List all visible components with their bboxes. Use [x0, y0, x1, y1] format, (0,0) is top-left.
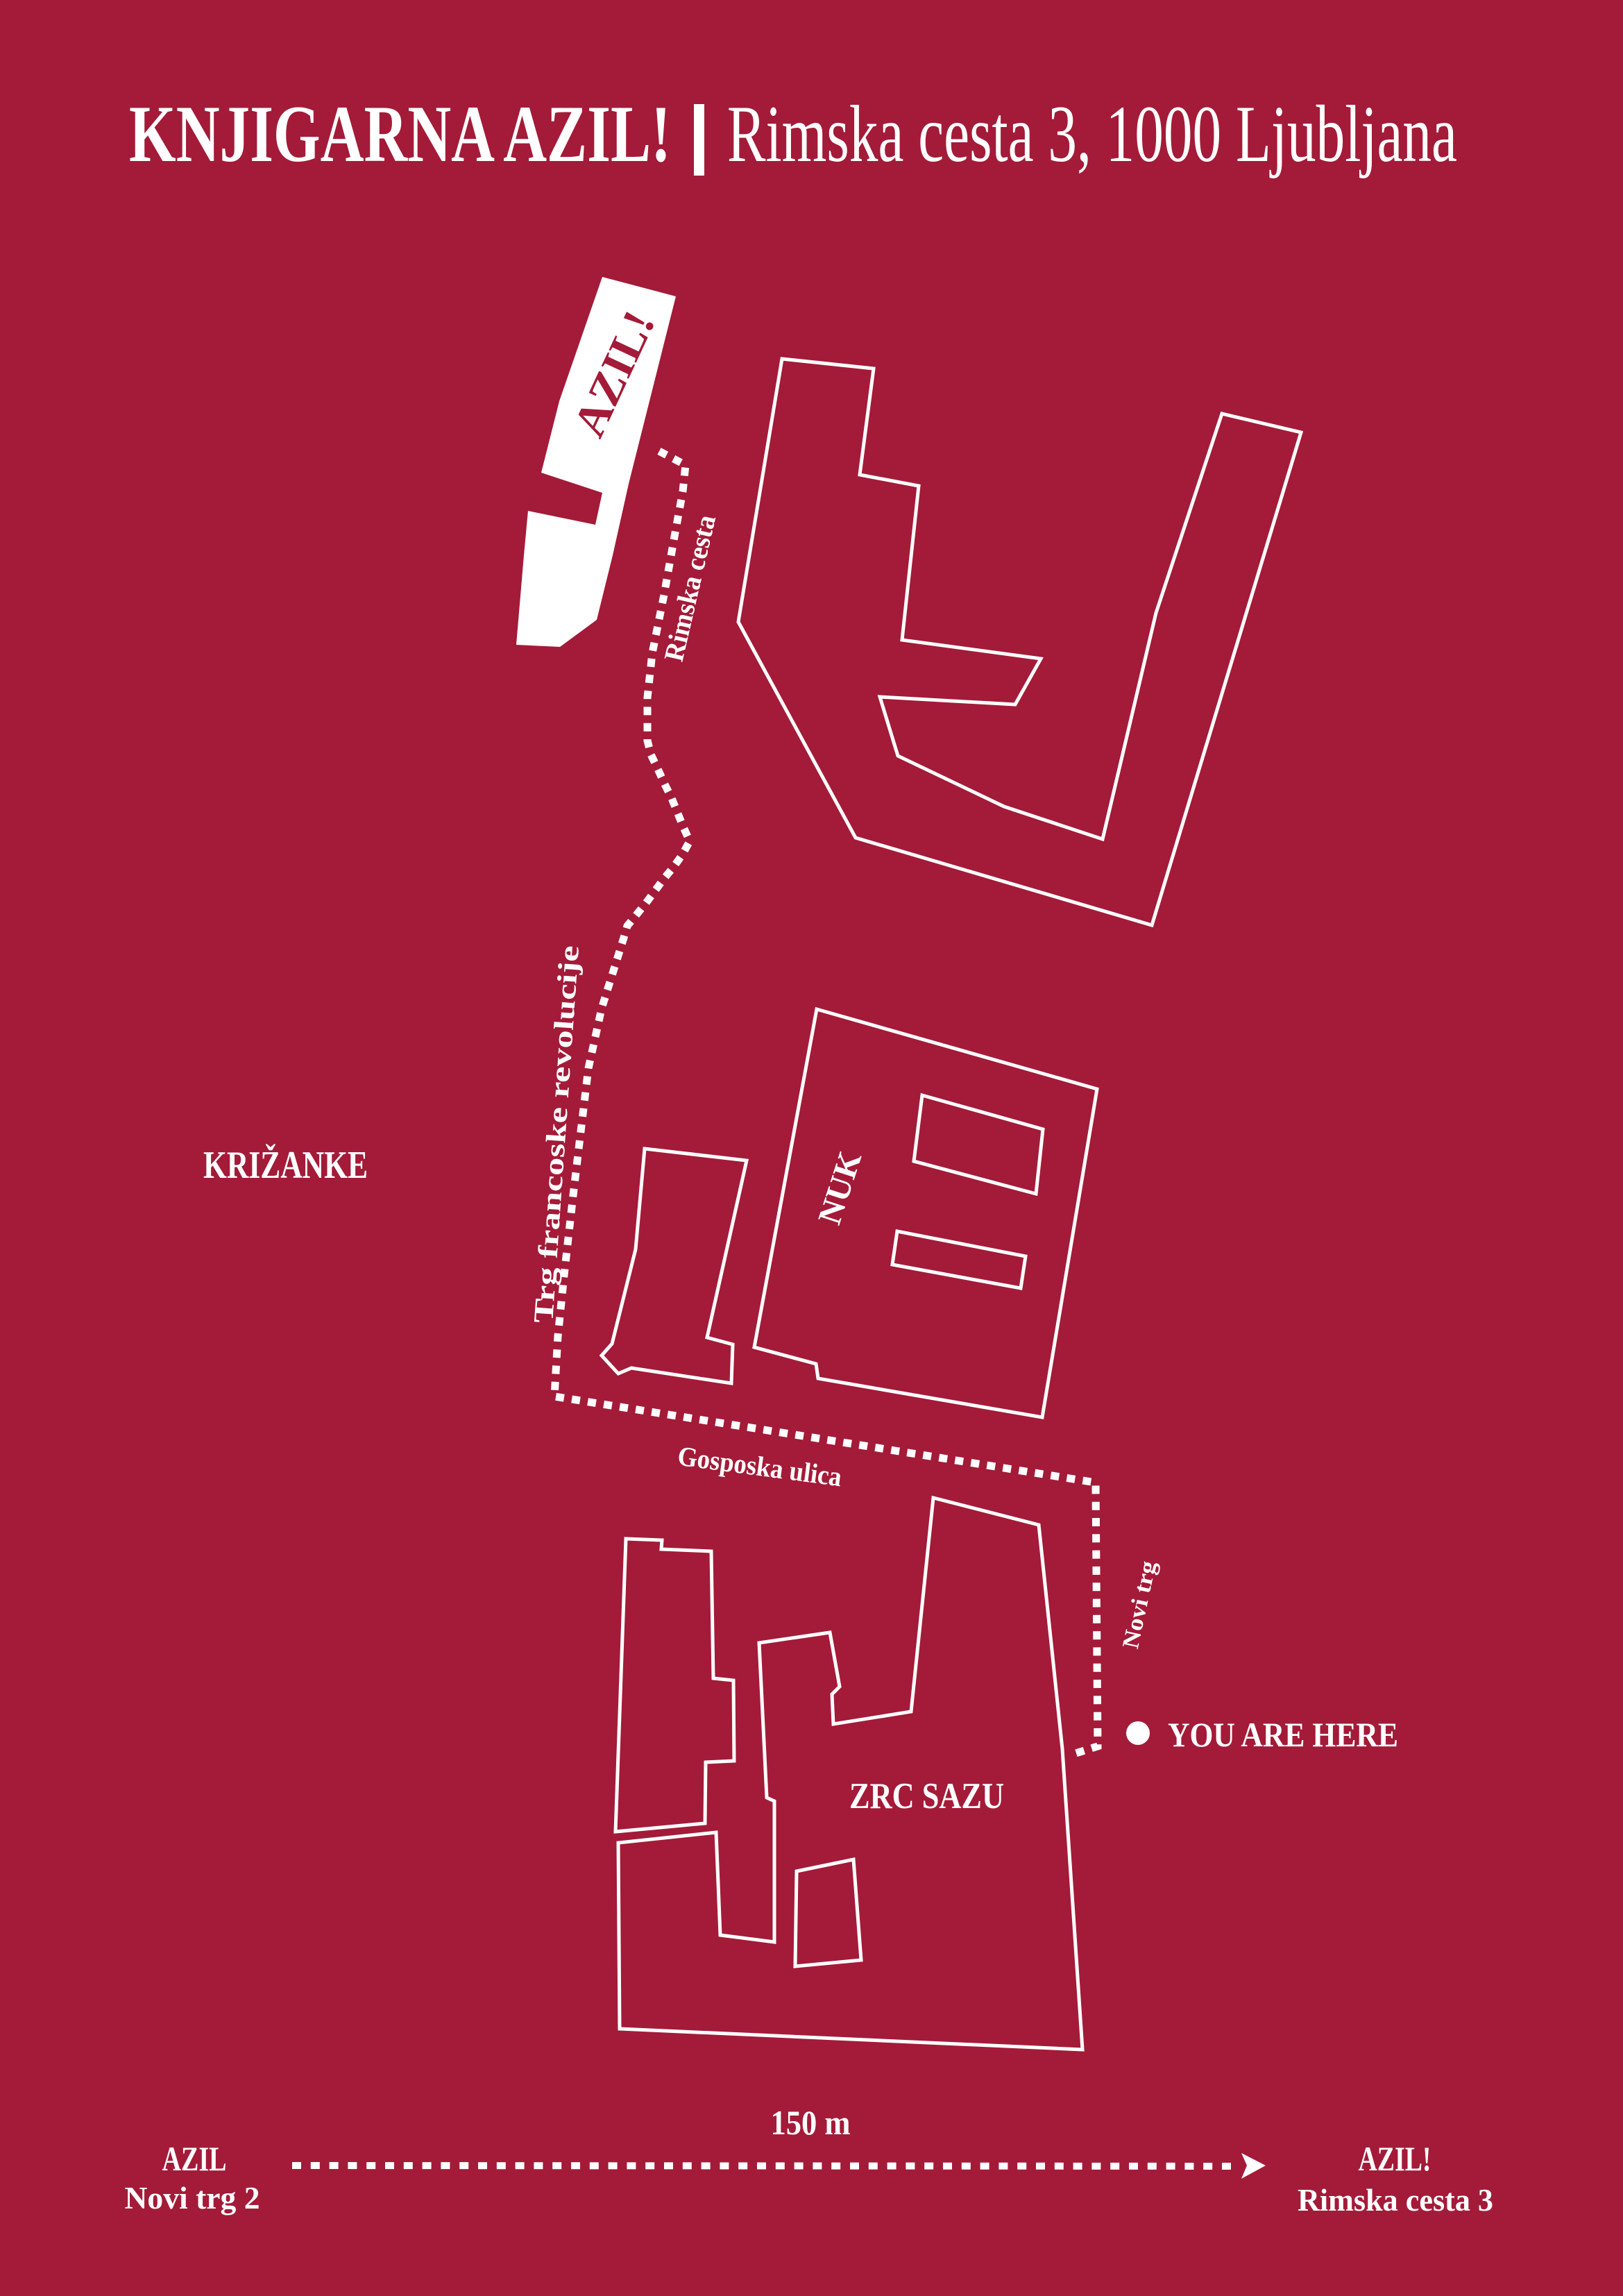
- svg-text:Rimska cesta 3: Rimska cesta 3: [1298, 2183, 1493, 2218]
- svg-text:Rimska cesta 3, 1000 Ljubljana: Rimska cesta 3, 1000 Ljubljana: [727, 90, 1457, 179]
- svg-text:YOU ARE HERE: YOU ARE HERE: [1168, 1715, 1398, 1754]
- svg-text:ZRC SAZU: ZRC SAZU: [849, 1776, 1004, 1816]
- svg-text:KRIŽANKE: KRIŽANKE: [203, 1143, 368, 1187]
- svg-text:AZIL!: AZIL!: [1359, 2139, 1431, 2178]
- svg-text:KNJIGARNA AZIL!: KNJIGARNA AZIL!: [129, 90, 671, 179]
- svg-text:Novi trg 2: Novi trg 2: [125, 2181, 260, 2215]
- svg-text:AZIL: AZIL: [162, 2139, 227, 2178]
- svg-text:150 m: 150 m: [771, 2103, 851, 2142]
